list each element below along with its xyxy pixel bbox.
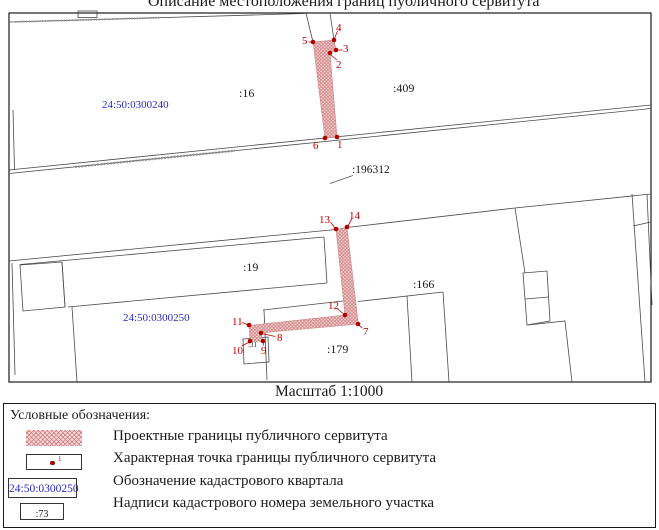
legend-swatch-boundary-point: 1 — [26, 454, 82, 470]
parcel-label-409: :409 — [393, 82, 414, 95]
parcel-label-31: :31 — [248, 342, 257, 350]
parcel-label-196312: :196312 — [352, 164, 390, 177]
legend-item-label: Проектные границы публичного сервитута — [113, 428, 388, 445]
parcel-label-166: :166 — [413, 278, 434, 291]
point-label-2: 2 — [336, 59, 342, 71]
quarter-label-0300250: 24:50:0300250 — [123, 312, 190, 324]
point-label-4: 4 — [336, 22, 342, 34]
point-label-12: 12 — [328, 300, 339, 312]
legend-box: Условные обозначения: 1 24:50:0300250 :7… — [3, 403, 656, 528]
page: { "title": "Описание местоположения гран… — [0, 0, 659, 530]
servitude-area-upper — [313, 40, 337, 138]
legend-swatch-hatch-area — [26, 430, 82, 446]
quarter-label-0300240: 24:50:0300240 — [102, 99, 169, 111]
point-label-6: 6 — [313, 140, 319, 152]
legend-item-label: Обозначение кадастрового квартала — [113, 473, 343, 490]
block-top-boundary — [9, 194, 651, 261]
legend-swatch-quarter-number: 24:50:0300250 — [8, 478, 77, 499]
point-label-8: 8 — [277, 332, 283, 344]
parcel-label-16: :16 — [239, 87, 254, 100]
point-label-3: 3 — [343, 43, 349, 55]
building-footprint — [78, 11, 97, 18]
servitude-area-lower — [249, 228, 358, 342]
legend-parcel-sample: :73 — [36, 509, 49, 520]
point-label-10: 10 — [232, 345, 243, 357]
point-label-9: 9 — [261, 345, 267, 357]
point-label-7: 7 — [363, 326, 369, 338]
legend-item-label: Характерная точка границы публичного сер… — [113, 450, 436, 467]
legend-item-label: Надписи кадастрового номера земельного у… — [113, 495, 434, 512]
legend-point-number: 1 — [58, 455, 62, 463]
legend-header: Условные обозначения: — [10, 408, 150, 423]
page-title: Описание местоположения границ публичног… — [148, 0, 540, 11]
parcel-196312-leader — [330, 176, 353, 184]
point-label-1: 1 — [337, 139, 343, 151]
point-label-14: 14 — [349, 210, 360, 222]
point-label-5: 5 — [302, 35, 308, 47]
point-label-13: 13 — [319, 214, 330, 226]
legend-quarter-sample: 24:50:0300250 — [9, 483, 79, 495]
parcel-outline — [20, 262, 65, 311]
boundary-point-icon — [50, 461, 55, 466]
parcel-label-19: :19 — [243, 261, 258, 274]
map-scale-label: Масштаб 1:1000 — [275, 383, 383, 400]
parcel-label-179: :179 — [327, 343, 348, 356]
point-label-11: 11 — [232, 316, 243, 328]
legend-swatch-parcel-number: :73 — [20, 503, 64, 520]
